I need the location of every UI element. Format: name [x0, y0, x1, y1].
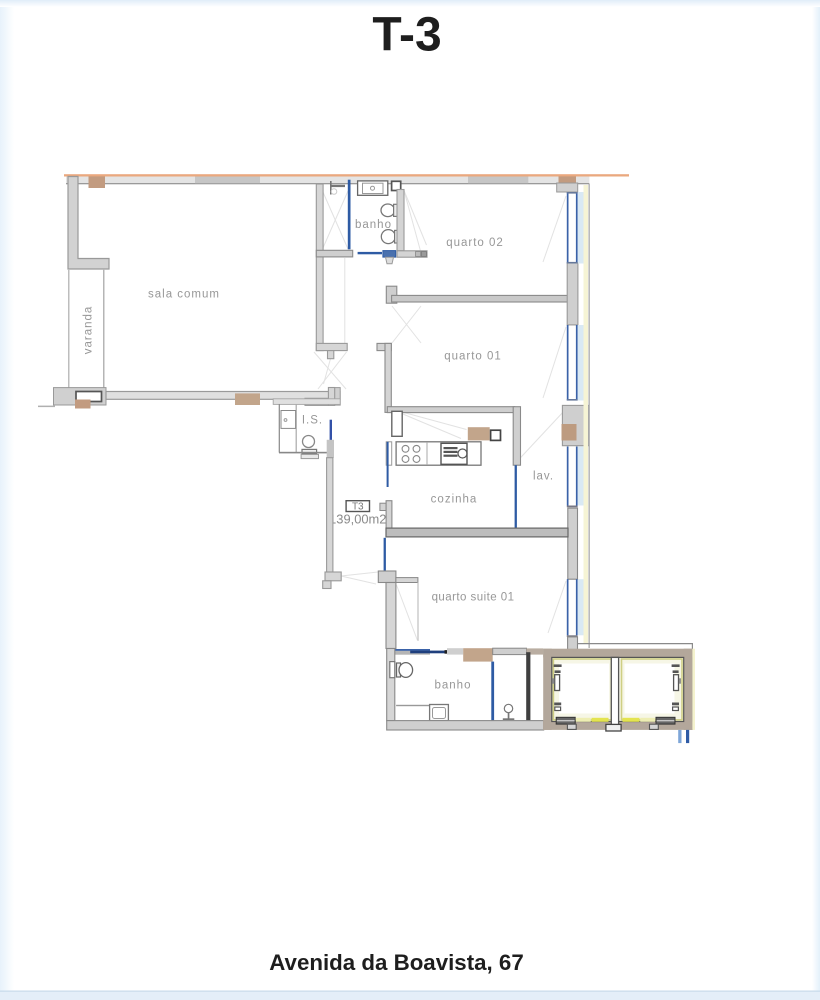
svg-text:quarto suite 01: quarto suite 01 — [432, 592, 515, 604]
svg-text:banho: banho — [435, 680, 472, 692]
svg-text:lav.: lav. — [533, 471, 554, 483]
svg-text:sala comum: sala comum — [148, 289, 220, 301]
svg-text:139,00m2: 139,00m2 — [329, 511, 386, 526]
svg-text:cozinha: cozinha — [431, 494, 478, 506]
svg-text:varanda: varanda — [83, 306, 95, 355]
svg-text:banho: banho — [355, 219, 392, 231]
svg-text:Avenida da Boavista, 67: Avenida da Boavista, 67 — [269, 950, 523, 975]
svg-text:I.S.: I.S. — [302, 415, 323, 427]
svg-text:quarto 02: quarto 02 — [446, 237, 504, 249]
svg-text:quarto 01: quarto 01 — [444, 351, 502, 363]
svg-text:T-3: T-3 — [372, 9, 441, 62]
